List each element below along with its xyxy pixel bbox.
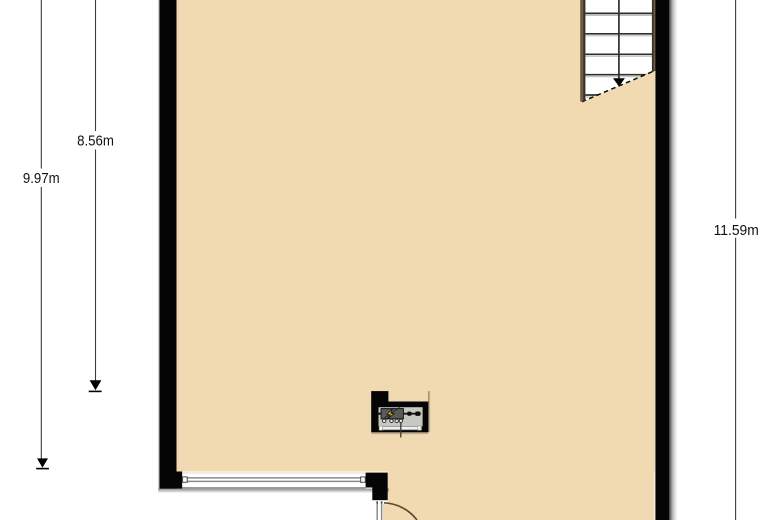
svg-text:9.97m: 9.97m bbox=[23, 170, 60, 187]
svg-text:11.59m: 11.59m bbox=[714, 222, 759, 239]
svg-text:8.56m: 8.56m bbox=[77, 133, 114, 150]
